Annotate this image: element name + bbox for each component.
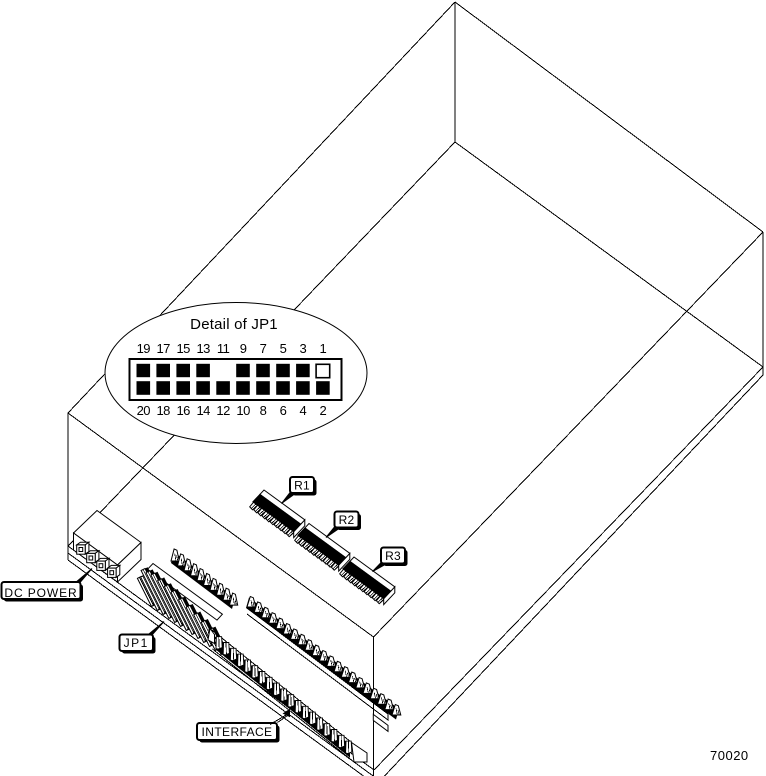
svg-text:9: 9 xyxy=(240,341,247,356)
svg-text:7: 7 xyxy=(260,341,267,356)
svg-text:70020: 70020 xyxy=(710,748,749,763)
svg-text:6: 6 xyxy=(280,403,287,418)
svg-text:1: 1 xyxy=(320,341,327,356)
svg-text:20: 20 xyxy=(137,403,151,418)
svg-text:5: 5 xyxy=(280,341,287,356)
svg-text:JP1: JP1 xyxy=(124,636,149,650)
svg-text:11: 11 xyxy=(217,341,230,356)
svg-text:4: 4 xyxy=(300,403,307,418)
svg-text:R2: R2 xyxy=(339,513,355,527)
svg-text:3: 3 xyxy=(300,341,307,356)
svg-text:13: 13 xyxy=(196,341,210,356)
svg-text:10: 10 xyxy=(236,403,250,418)
svg-text:R1: R1 xyxy=(294,478,310,492)
svg-text:16: 16 xyxy=(176,403,190,418)
svg-text:R3: R3 xyxy=(385,549,401,563)
svg-text:15: 15 xyxy=(176,341,190,356)
svg-text:19: 19 xyxy=(137,341,151,356)
svg-text:DC POWER: DC POWER xyxy=(4,586,77,600)
svg-text:Detail of JP1: Detail of JP1 xyxy=(190,316,278,333)
svg-text:18: 18 xyxy=(156,403,170,418)
svg-text:12: 12 xyxy=(216,403,230,418)
svg-text:2: 2 xyxy=(320,403,327,418)
svg-text:INTERFACE: INTERFACE xyxy=(202,725,273,739)
svg-text:8: 8 xyxy=(260,403,267,418)
svg-text:17: 17 xyxy=(156,341,170,356)
svg-text:14: 14 xyxy=(196,403,210,418)
